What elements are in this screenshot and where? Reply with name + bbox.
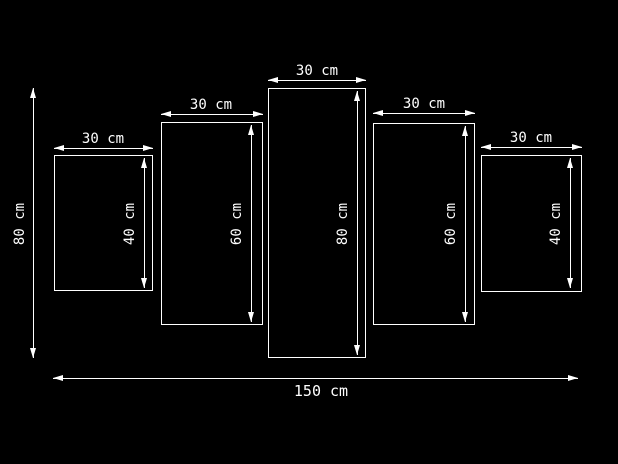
- arrowhead-left-icon: [54, 145, 64, 151]
- arrowhead-right-icon: [568, 375, 578, 381]
- arrowhead-up-icon: [30, 88, 36, 98]
- panel-5-width-dimension-line: [481, 147, 582, 148]
- panel-3-height-label: 80 cm: [336, 203, 350, 245]
- arrowhead-left-icon: [373, 110, 383, 116]
- panel-1-outline: [54, 155, 153, 291]
- panel-2-width-label: 30 cm: [190, 98, 232, 112]
- panel-2-outline: [161, 122, 263, 325]
- panel-1-height-dimension-line: [144, 158, 145, 288]
- overall-width-dimension-line: [53, 378, 578, 379]
- arrowhead-right-icon: [572, 144, 582, 150]
- panel-3-width-label: 30 cm: [296, 64, 338, 78]
- arrowhead-left-icon: [161, 111, 171, 117]
- panel-3-width-dimension-line: [268, 80, 366, 81]
- panel-2-width-dimension-line: [161, 114, 263, 115]
- panel-3-height-dimension-line: [357, 91, 358, 355]
- panel-4-width-label: 30 cm: [403, 97, 445, 111]
- arrowhead-up-icon: [248, 125, 254, 135]
- arrowhead-right-icon: [253, 111, 263, 117]
- panel-5-height-label: 40 cm: [549, 203, 563, 245]
- panel-1-width-label: 30 cm: [82, 132, 124, 146]
- arrowhead-left-icon: [53, 375, 63, 381]
- arrowhead-left-icon: [481, 144, 491, 150]
- five-panel-size-diagram: 80 cm 150 cm 30 cm 40 cm 30 cm 60 cm: [0, 0, 618, 464]
- arrowhead-right-icon: [356, 77, 366, 83]
- arrowhead-down-icon: [462, 312, 468, 322]
- panel-4-outline: [373, 123, 475, 325]
- arrowhead-up-icon: [567, 158, 573, 168]
- overall-height-dimension-line: [33, 88, 34, 358]
- panel-4-height-label: 60 cm: [444, 203, 458, 245]
- panel-1-width-dimension-line: [54, 148, 153, 149]
- panel-5-width-label: 30 cm: [510, 131, 552, 145]
- arrowhead-right-icon: [465, 110, 475, 116]
- panel-3-outline: [268, 88, 366, 358]
- panel-5-outline: [481, 155, 582, 292]
- arrowhead-up-icon: [141, 158, 147, 168]
- arrowhead-down-icon: [30, 348, 36, 358]
- arrowhead-down-icon: [354, 345, 360, 355]
- arrowhead-right-icon: [143, 145, 153, 151]
- panel-2-height-label: 60 cm: [230, 203, 244, 245]
- panel-2-height-dimension-line: [251, 125, 252, 322]
- arrowhead-down-icon: [248, 312, 254, 322]
- arrowhead-up-icon: [462, 126, 468, 136]
- panel-4-height-dimension-line: [465, 126, 466, 322]
- overall-height-label: 80 cm: [13, 203, 27, 245]
- arrowhead-down-icon: [141, 278, 147, 288]
- arrowhead-up-icon: [354, 91, 360, 101]
- arrowhead-down-icon: [567, 278, 573, 288]
- panel-4-width-dimension-line: [373, 113, 475, 114]
- panel-5-height-dimension-line: [570, 158, 571, 288]
- arrowhead-left-icon: [268, 77, 278, 83]
- panel-1-height-label: 40 cm: [123, 203, 137, 245]
- overall-width-label: 150 cm: [294, 384, 348, 398]
